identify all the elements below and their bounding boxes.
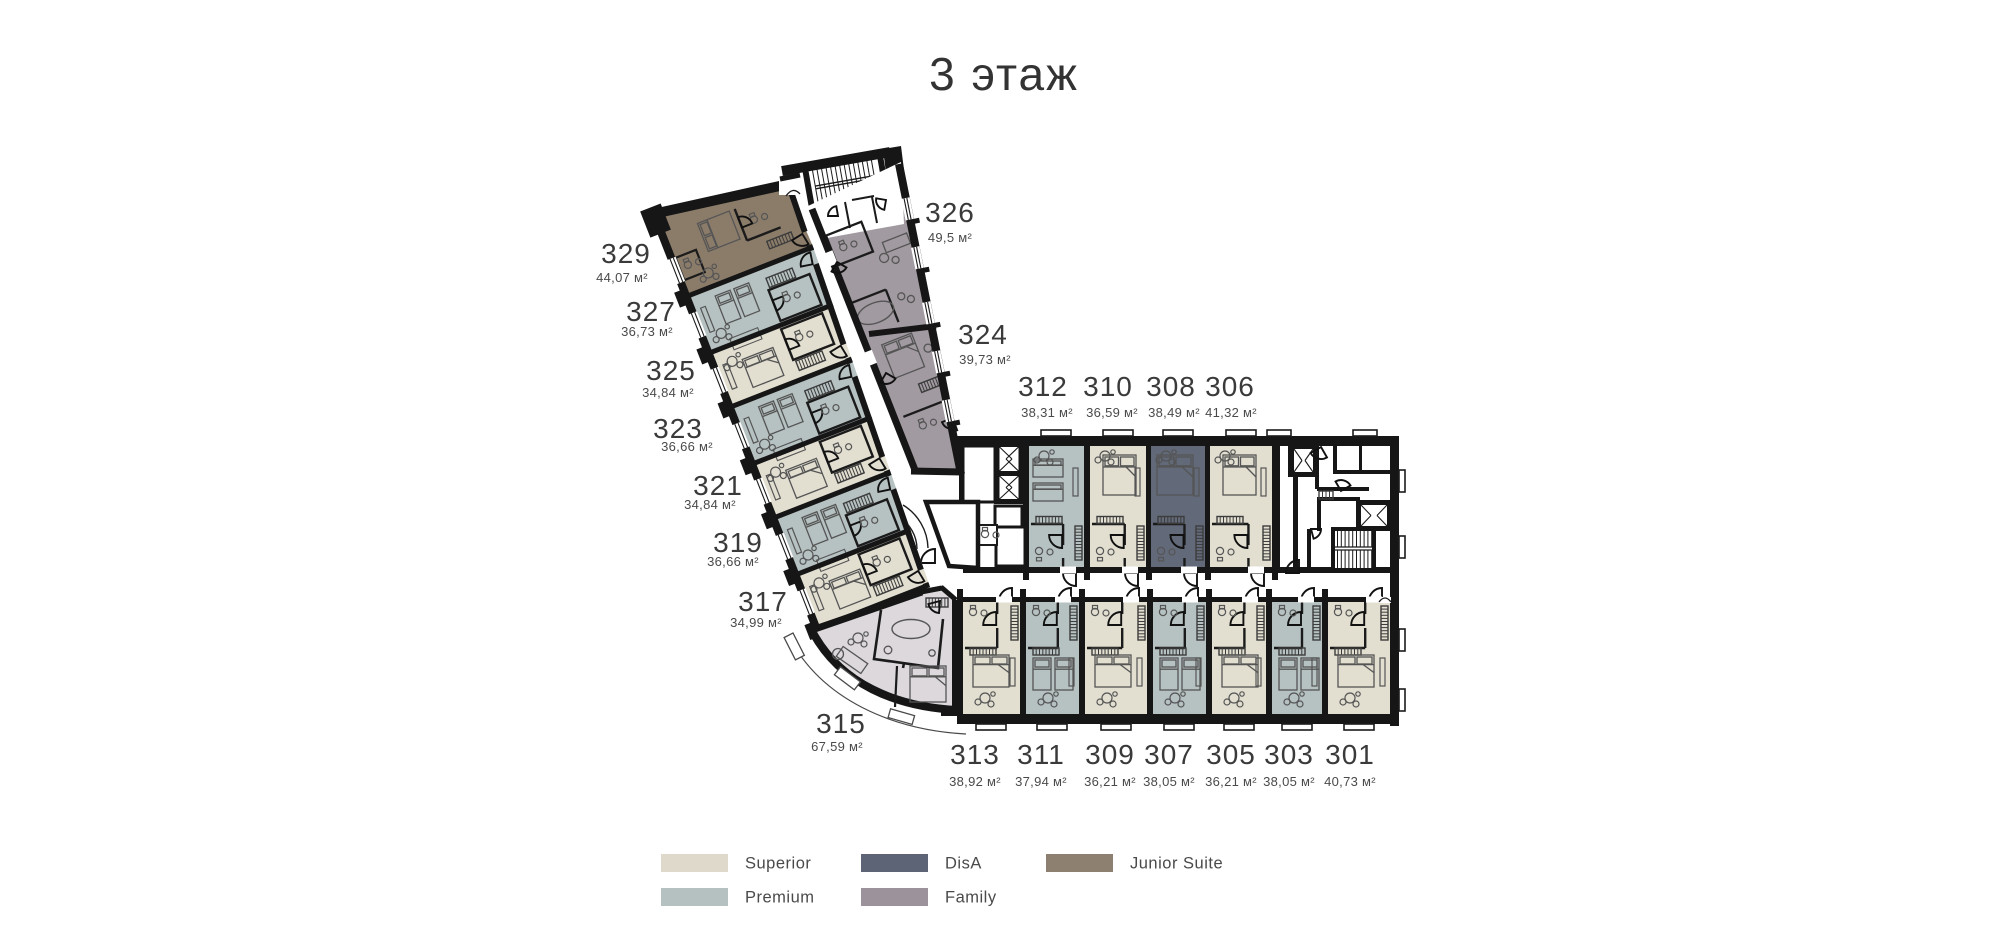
svg-text:Premium: Premium [745, 889, 815, 907]
svg-text:329: 329 [601, 238, 651, 269]
svg-text:38,92 м²: 38,92 м² [949, 774, 1001, 789]
svg-text:317: 317 [738, 586, 788, 617]
svg-text:38,05 м²: 38,05 м² [1143, 774, 1195, 789]
svg-text:324: 324 [958, 319, 1008, 350]
svg-text:38,05 м²: 38,05 м² [1263, 774, 1315, 789]
svg-text:41,32 м²: 41,32 м² [1205, 405, 1257, 420]
svg-text:Junior Suite: Junior Suite [1130, 855, 1223, 873]
svg-text:39,73 м²: 39,73 м² [959, 352, 1011, 367]
svg-text:Superior: Superior [745, 855, 811, 873]
svg-text:34,84 м²: 34,84 м² [642, 385, 694, 400]
svg-text:309: 309 [1085, 739, 1135, 770]
svg-text:44,07 м²: 44,07 м² [596, 270, 648, 285]
svg-text:36,66 м²: 36,66 м² [661, 439, 713, 454]
svg-text:327: 327 [626, 296, 676, 327]
svg-text:325: 325 [646, 355, 696, 386]
svg-text:36,66 м²: 36,66 м² [707, 554, 759, 569]
svg-text:326: 326 [925, 197, 975, 228]
svg-text:36,21 м²: 36,21 м² [1084, 774, 1136, 789]
svg-text:311: 311 [1017, 739, 1065, 770]
svg-text:36,73 м²: 36,73 м² [621, 324, 673, 339]
svg-text:315: 315 [816, 708, 866, 739]
svg-text:38,31 м²: 38,31 м² [1021, 405, 1073, 420]
svg-text:36,59 м²: 36,59 м² [1086, 405, 1138, 420]
svg-text:310: 310 [1083, 371, 1133, 402]
svg-text:37,94 м²: 37,94 м² [1015, 774, 1067, 789]
svg-text:312: 312 [1018, 371, 1068, 402]
svg-text:301: 301 [1325, 739, 1375, 770]
svg-text:34,84 м²: 34,84 м² [684, 497, 736, 512]
svg-text:DisA: DisA [945, 855, 982, 873]
svg-text:305: 305 [1206, 739, 1256, 770]
svg-text:Family: Family [945, 889, 997, 907]
svg-text:307: 307 [1144, 739, 1194, 770]
svg-text:3 этаж: 3 этаж [929, 48, 1079, 100]
svg-text:36,21 м²: 36,21 м² [1205, 774, 1257, 789]
svg-text:38,49 м²: 38,49 м² [1148, 405, 1200, 420]
svg-text:67,59 м²: 67,59 м² [811, 739, 863, 754]
svg-text:34,99 м²: 34,99 м² [730, 615, 782, 630]
svg-text:308: 308 [1146, 371, 1196, 402]
svg-text:303: 303 [1264, 739, 1314, 770]
svg-text:313: 313 [950, 739, 1000, 770]
svg-text:49,5 м²: 49,5 м² [928, 230, 973, 245]
svg-text:40,73 м²: 40,73 м² [1324, 774, 1376, 789]
svg-text:306: 306 [1205, 371, 1255, 402]
